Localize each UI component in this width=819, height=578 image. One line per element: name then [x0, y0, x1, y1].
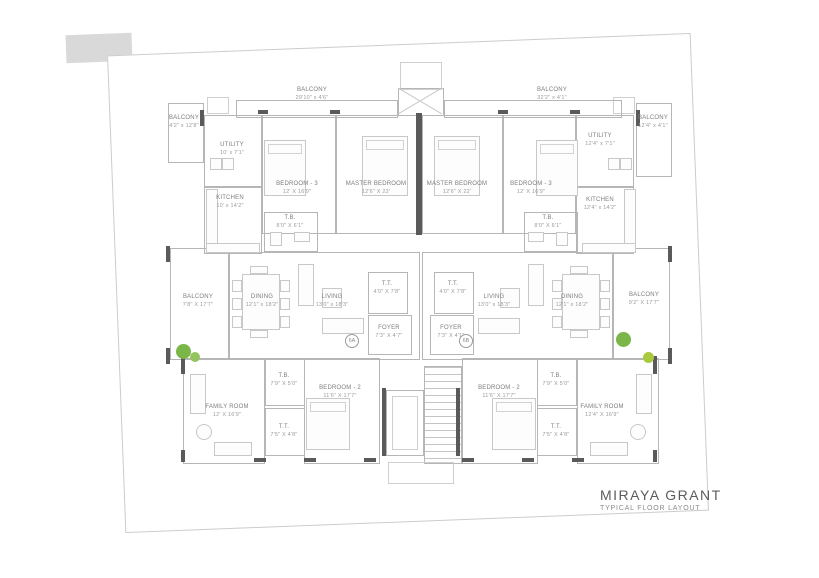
room-label-balcony-mid-right: BALCONY9'2" X 17'7": [629, 292, 659, 306]
chair: [232, 298, 242, 310]
wall-pier: [364, 458, 376, 462]
room-dims: 12'4" x 14'2": [584, 204, 617, 211]
basin-fixture: [294, 232, 310, 242]
kitchen-counter: [582, 243, 636, 253]
room-dims: 12' X 16'9": [510, 188, 552, 195]
room-dims: 11'6" X 17'7": [478, 392, 520, 399]
room-dims: 12'6" X 22': [346, 188, 406, 195]
kitchen-counter: [624, 189, 636, 247]
room-label-kitchen-right: KITCHEN12'4" x 14'2": [584, 197, 617, 211]
chair: [552, 280, 562, 292]
room-label-dining-left: DINING12'1" x 18'2": [246, 294, 279, 308]
entry-porch: [388, 462, 454, 484]
utility-fixture: [620, 158, 632, 170]
room-label-balcony-side-right: BALCONY12'4" x 4'1": [638, 115, 668, 129]
wall-pier: [498, 110, 508, 114]
plant-icon: [643, 352, 654, 363]
room-name: T.T.: [270, 424, 297, 432]
drawing-subtitle: TYPICAL FLOOR LAYOUT: [600, 505, 722, 512]
plant-icon: [616, 332, 631, 347]
sofa: [590, 442, 628, 456]
balcony-side-left: [168, 103, 204, 163]
room-label-kitchen-left: KITCHEN10' x 14'2": [216, 195, 244, 209]
armchair: [630, 424, 646, 440]
room-dims: 13'0" x 18'3": [478, 301, 511, 308]
room-dims: 7'5" X 4'8": [270, 431, 297, 438]
chair: [250, 266, 268, 274]
room-label-balcony-side-left: BALCONY4'2" x 12'8": [169, 115, 199, 129]
wall-pier: [200, 110, 204, 126]
chair: [600, 298, 610, 310]
room-label-living-left: LIVING13'0" x 18'3": [316, 294, 349, 308]
room-name: LIVING: [478, 294, 511, 302]
room-label-family-right: FAMILY ROOM12'4" X 16'9": [580, 404, 623, 418]
room-dims: 13'0" x 18'3": [316, 301, 349, 308]
room-label-tt2-right: T.T.7'5" X 4'8": [542, 424, 569, 438]
utility-fixture: [210, 158, 222, 170]
room-name: T.B.: [534, 215, 561, 223]
room-label-utility-left: UTILITY10' x 7'1": [220, 142, 244, 156]
room-dims: 12' X 16'9": [205, 411, 248, 418]
wall-pier: [166, 348, 170, 364]
wall-pier: [572, 458, 584, 462]
room-name: BALCONY: [638, 115, 668, 123]
room-dims: 7'9" X 5'0": [542, 380, 569, 387]
kitchen-counter: [206, 243, 260, 253]
sofa: [190, 374, 206, 414]
unit-number: 6A: [349, 338, 356, 344]
room-label-tt2-left: T.T.7'5" X 4'8": [270, 424, 297, 438]
room-label-utility-right: UTILITY12'4" x 7'1": [585, 133, 615, 147]
wall-pier: [254, 458, 266, 462]
wall-pier: [653, 450, 657, 462]
unit-number: 6B: [463, 338, 470, 344]
room-name: KITCHEN: [216, 195, 244, 203]
room-label-tt-right: T.T.4'0" X 7'8": [439, 281, 466, 295]
room-dims: 4'0" X 7'8": [373, 288, 400, 295]
room-dims: 29'10" x 4'6": [296, 94, 329, 101]
room-name: BEDROOM - 2: [478, 385, 520, 393]
room-label-tb-right: T.B.8'0" X 6'1": [534, 215, 561, 229]
room-name: BEDROOM - 3: [510, 181, 552, 189]
room-name: BEDROOM - 2: [319, 385, 361, 393]
wall-pier: [522, 458, 534, 462]
room-name: DINING: [556, 294, 589, 302]
room-dims: 8'0" X 6'1": [276, 222, 303, 229]
room-dims: 7'8" X 17'7": [183, 301, 213, 308]
room-label-bedroom3-right: BEDROOM - 312' X 16'9": [510, 181, 552, 195]
chair: [600, 316, 610, 328]
utility-fixture: [608, 158, 620, 170]
room-name: DINING: [246, 294, 279, 302]
room-dims: 7'9" X 5'0": [270, 380, 297, 387]
project-title: MIRAYA GRANT: [600, 487, 722, 503]
wall-pier: [570, 110, 580, 114]
chair: [570, 330, 588, 338]
wc-fixture: [270, 232, 282, 246]
room-name: BEDROOM - 3: [276, 181, 318, 189]
room-label-foyer-left: FOYER7'3" X 4'7": [375, 325, 402, 339]
room-label-balcony-mid-left: BALCONY7'8" X 17'7": [183, 294, 213, 308]
room-dims: 12'4" x 4'1": [638, 122, 668, 129]
bed: [306, 398, 350, 450]
room-label-balcony-top-right: BALCONY32'2" x 4'1": [537, 87, 567, 101]
room-name: T.T.: [439, 281, 466, 289]
wall-pier: [462, 458, 474, 462]
room-utility-right: [576, 115, 634, 187]
wall-pier: [382, 388, 386, 456]
room-dims: 8'0" X 6'1": [534, 222, 561, 229]
room-label-bedroom2-left: BEDROOM - 211'6" X 17'7": [319, 385, 361, 399]
room-name: T.T.: [373, 281, 400, 289]
chair: [600, 280, 610, 292]
room-label-dining-right: DINING12'1" x 18'2": [556, 294, 589, 308]
chair: [280, 316, 290, 328]
title-block: MIRAYA GRANT TYPICAL FLOOR LAYOUT: [600, 487, 722, 512]
top-left-shaft: [207, 97, 229, 114]
room-name: MASTER BEDROOM: [427, 181, 487, 189]
room-label-tt-left: T.T.4'0" X 7'8": [373, 281, 400, 295]
room-name: FAMILY ROOM: [205, 404, 248, 412]
sofa: [322, 318, 364, 334]
room-label-living-right: LIVING13'0" x 18'3": [478, 294, 511, 308]
chair: [250, 330, 268, 338]
room-label-master-left: MASTER BEDROOM12'6" X 22': [346, 181, 406, 195]
room-name: FOYER: [375, 325, 402, 333]
wc-fixture: [556, 232, 568, 246]
plant-icon: [176, 344, 191, 359]
room-name: UTILITY: [220, 142, 244, 150]
bed: [492, 398, 536, 450]
sofa: [636, 374, 652, 414]
room-label-tb2-left: T.B.7'9" X 5'0": [270, 373, 297, 387]
room-name: FAMILY ROOM: [580, 404, 623, 412]
sofa: [528, 264, 544, 306]
lift-car: [392, 396, 418, 450]
room-label-tb2-right: T.B.7'9" X 5'0": [542, 373, 569, 387]
room-name: BALCONY: [629, 292, 659, 300]
room-dims: 4'2" x 12'8": [169, 122, 199, 129]
room-name: KITCHEN: [584, 197, 617, 205]
room-dims: 4'0" X 7'8": [439, 288, 466, 295]
room-name: T.B.: [276, 215, 303, 223]
room-dims: 12'1" x 18'2": [246, 301, 279, 308]
wall-pier: [668, 246, 672, 262]
room-dims: 12' X 16'9": [276, 188, 318, 195]
room-label-balcony-top-left: BALCONY29'10" x 4'6": [296, 87, 329, 101]
duct-cross-icon: [398, 88, 442, 114]
room-name: LIVING: [316, 294, 349, 302]
sofa: [214, 442, 252, 456]
room-dims: 12'4" x 7'1": [585, 140, 615, 147]
wall-pier: [330, 110, 340, 114]
room-label-master-right: MASTER BEDROOM12'6" X 22': [427, 181, 487, 195]
room-name: T.T.: [542, 424, 569, 432]
wall-pier: [166, 246, 170, 262]
room-dims: 12'4" X 16'9": [580, 411, 623, 418]
room-label-bedroom3-left: BEDROOM - 312' X 16'9": [276, 181, 318, 195]
chair: [570, 266, 588, 274]
room-name: BALCONY: [296, 87, 329, 95]
room-label-tb-left: T.B.8'0" X 6'1": [276, 215, 303, 229]
chair: [552, 316, 562, 328]
room-name: FOYER: [437, 325, 464, 333]
utility-fixture: [222, 158, 234, 170]
top-center-projection: [400, 62, 442, 90]
room-name: UTILITY: [585, 133, 615, 141]
chair: [232, 280, 242, 292]
room-name: T.B.: [270, 373, 297, 381]
room-label-bedroom2-right: BEDROOM - 211'6" X 17'7": [478, 385, 520, 399]
party-wall: [416, 113, 422, 235]
basin-fixture: [528, 232, 544, 242]
room-dims: 7'3" X 4'7": [375, 332, 402, 339]
room-dims: 32'2" x 4'1": [537, 94, 567, 101]
wall-pier: [668, 348, 672, 364]
sofa: [298, 264, 314, 306]
armchair: [196, 424, 212, 440]
chair: [232, 316, 242, 328]
room-label-family-left: FAMILY ROOM12' X 16'9": [205, 404, 248, 418]
room-name: MASTER BEDROOM: [346, 181, 406, 189]
room-name: T.B.: [542, 373, 569, 381]
room-name: BALCONY: [183, 294, 213, 302]
chair: [280, 280, 290, 292]
wall-pier: [456, 388, 460, 456]
room-dims: 10' x 14'2": [216, 202, 244, 209]
unit-badge-6b: 6B: [459, 334, 473, 348]
plant-icon: [190, 352, 200, 362]
room-dims: 12'1" x 18'2": [556, 301, 589, 308]
room-name: BALCONY: [169, 115, 199, 123]
room-dims: 7'5" X 4'8": [542, 431, 569, 438]
room-dims: 9'2" X 17'7": [629, 299, 659, 306]
chair: [280, 298, 290, 310]
room-name: BALCONY: [537, 87, 567, 95]
room-dims: 12'6" X 22': [427, 188, 487, 195]
room-dims: 11'6" X 17'7": [319, 392, 361, 399]
wall-pier: [258, 110, 268, 114]
unit-badge-6a: 6A: [345, 334, 359, 348]
wall-pier: [181, 450, 185, 462]
sofa: [478, 318, 520, 334]
wall-pier: [304, 458, 316, 462]
room-dims: 10' x 7'1": [220, 149, 244, 156]
floor-plan-page: { "title_block": { "project": "MIRAYA GR…: [0, 0, 819, 578]
